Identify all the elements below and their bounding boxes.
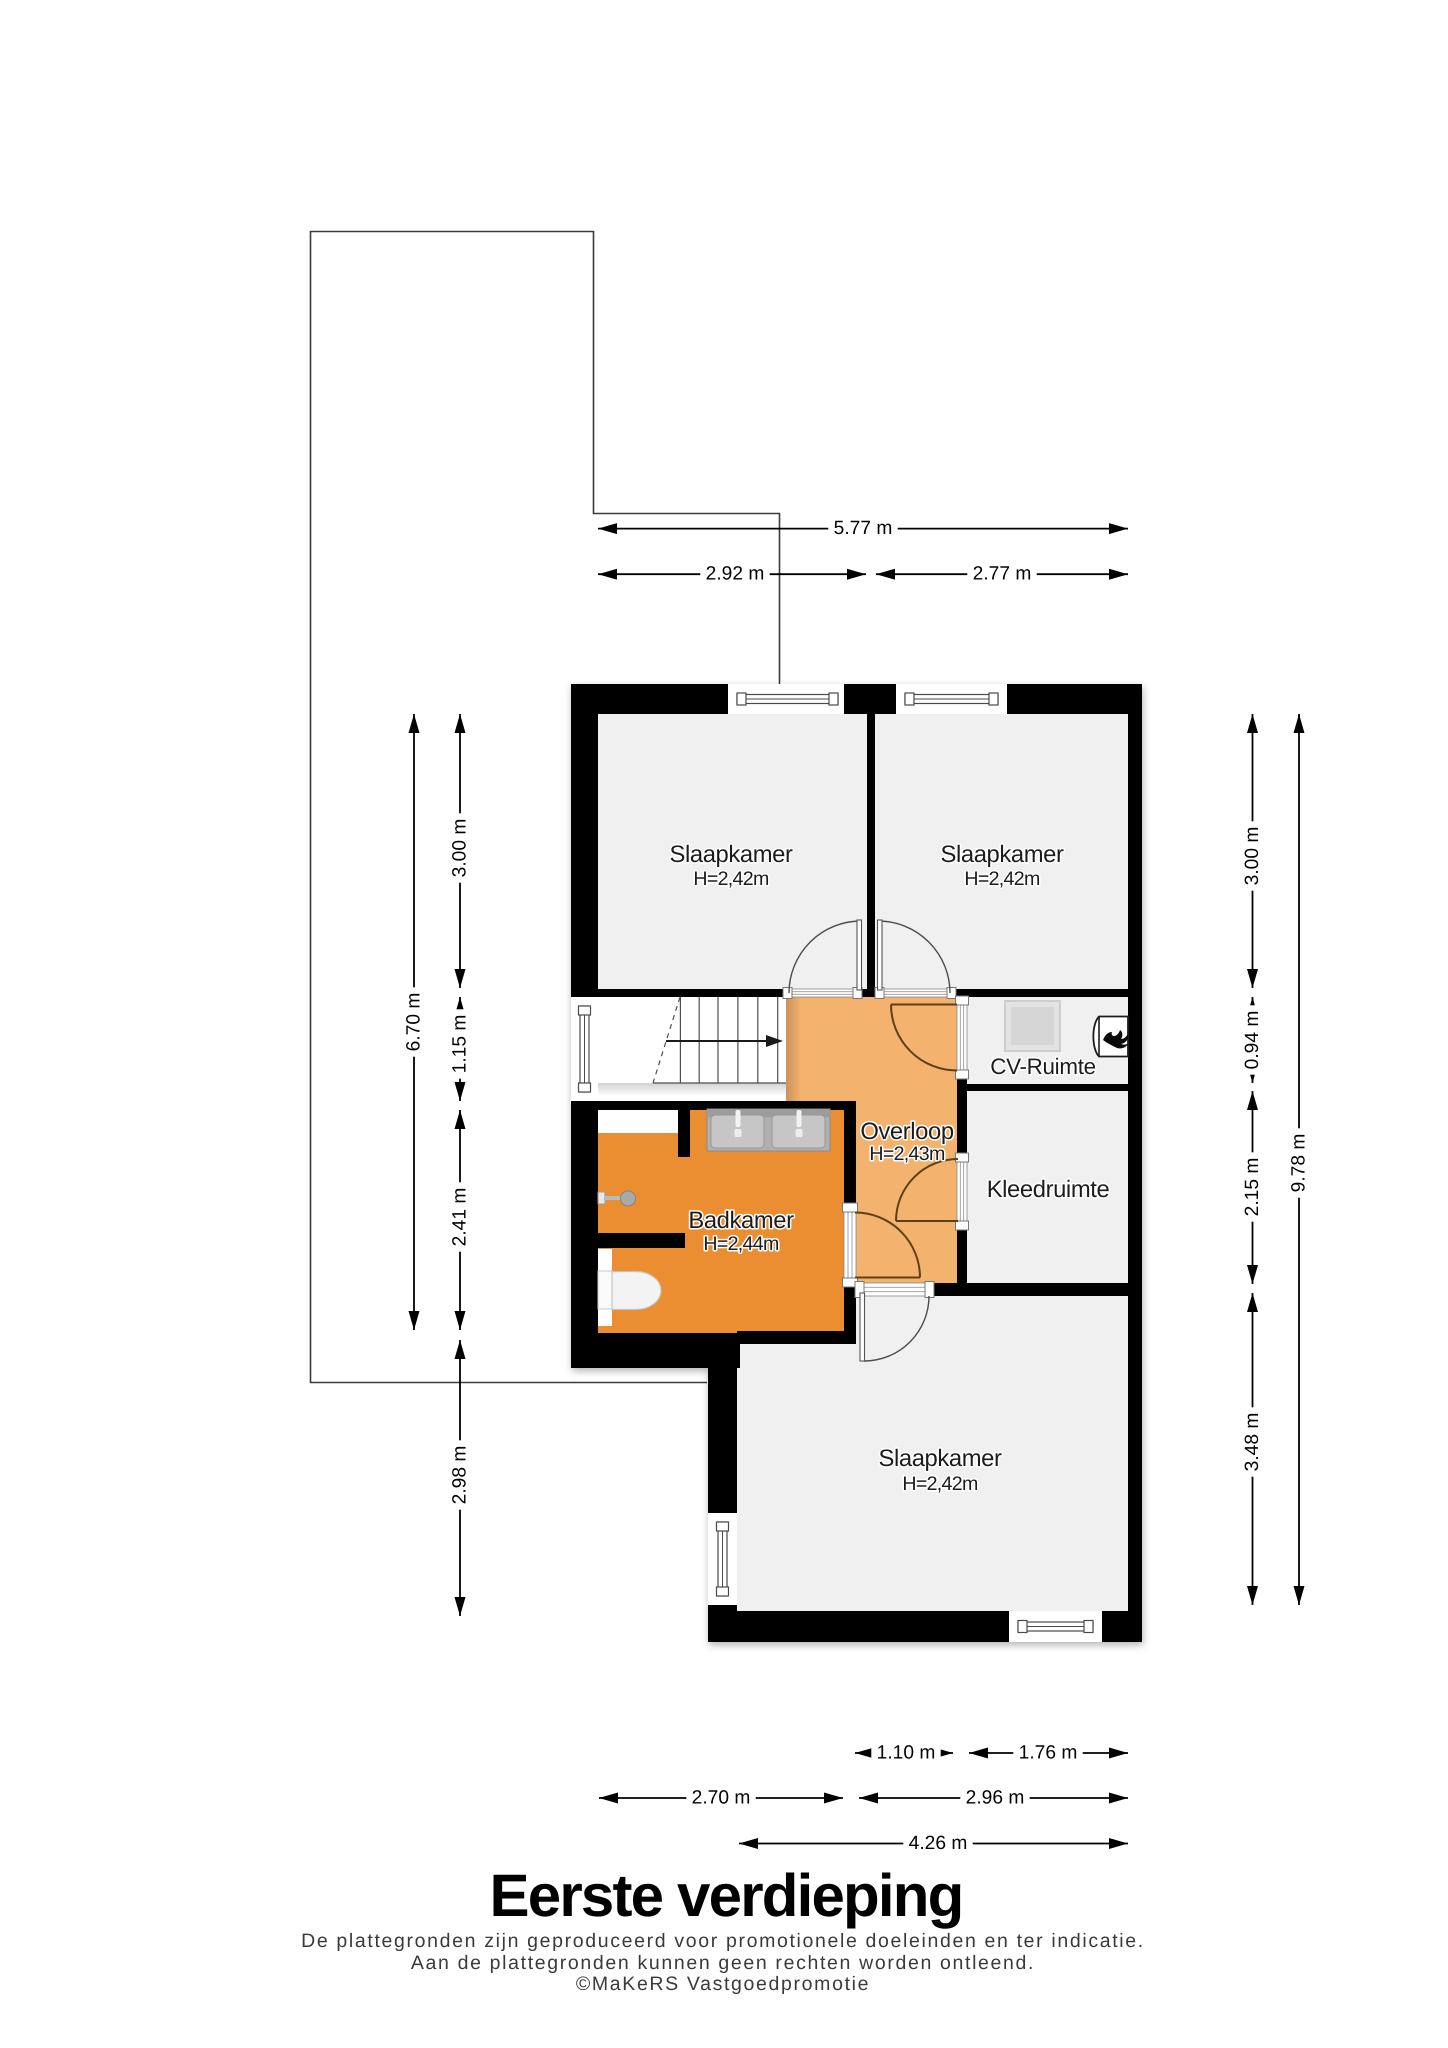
svg-text:2.70 m: 2.70 m xyxy=(692,1788,751,1809)
svg-text:H=2,42m: H=2,42m xyxy=(693,868,769,890)
svg-text:0.94 m: 0.94 m xyxy=(1242,1011,1263,1070)
svg-text:H=2,44m: H=2,44m xyxy=(703,1233,779,1255)
svg-text:Eerste verdieping: Eerste verdieping xyxy=(490,1862,963,1929)
svg-text:6.70 m: 6.70 m xyxy=(404,993,425,1052)
svg-text:Slaapkamer: Slaapkamer xyxy=(670,841,793,868)
svg-text:Overloop: Overloop xyxy=(860,1118,954,1145)
svg-text:2.92 m: 2.92 m xyxy=(706,564,765,585)
svg-text:H=2,42m: H=2,42m xyxy=(902,1473,978,1495)
svg-text:2.98 m: 2.98 m xyxy=(450,1446,471,1505)
svg-text:2.41 m: 2.41 m xyxy=(450,1188,471,1247)
svg-text:5.77 m: 5.77 m xyxy=(834,518,893,539)
svg-text:9.78 m: 9.78 m xyxy=(1289,1134,1310,1193)
svg-text:Badkamer: Badkamer xyxy=(688,1207,794,1234)
svg-text:H=2,42m: H=2,42m xyxy=(964,868,1040,890)
svg-text:2.15 m: 2.15 m xyxy=(1242,1158,1263,1217)
svg-text:3.00 m: 3.00 m xyxy=(1242,827,1263,886)
svg-text:Slaapkamer: Slaapkamer xyxy=(879,1445,1002,1472)
svg-text:1.15 m: 1.15 m xyxy=(450,1015,471,1074)
svg-text:2.77 m: 2.77 m xyxy=(973,564,1032,585)
svg-text:Kleedruimte: Kleedruimte xyxy=(987,1176,1110,1203)
svg-text:3.00 m: 3.00 m xyxy=(450,819,471,878)
svg-text:4.26 m: 4.26 m xyxy=(909,1833,968,1854)
svg-text:1.76 m: 1.76 m xyxy=(1019,1743,1078,1764)
svg-text:H=2,43m: H=2,43m xyxy=(869,1143,945,1165)
svg-text:©MaKeRS Vastgoedpromotie: ©MaKeRS Vastgoedpromotie xyxy=(576,1973,870,1995)
svg-text:CV-Ruimte: CV-Ruimte xyxy=(990,1054,1096,1079)
svg-text:Aan de plattegronden kunnen ge: Aan de plattegronden kunnen geen rechten… xyxy=(411,1952,1035,1974)
svg-text:Slaapkamer: Slaapkamer xyxy=(941,841,1064,868)
svg-text:2.96 m: 2.96 m xyxy=(966,1788,1025,1809)
svg-text:3.48 m: 3.48 m xyxy=(1242,1413,1263,1472)
svg-text:1.10 m: 1.10 m xyxy=(877,1743,936,1764)
svg-text:De plattegronden zijn geproduc: De plattegronden zijn geproduceerd voor … xyxy=(301,1930,1145,1952)
